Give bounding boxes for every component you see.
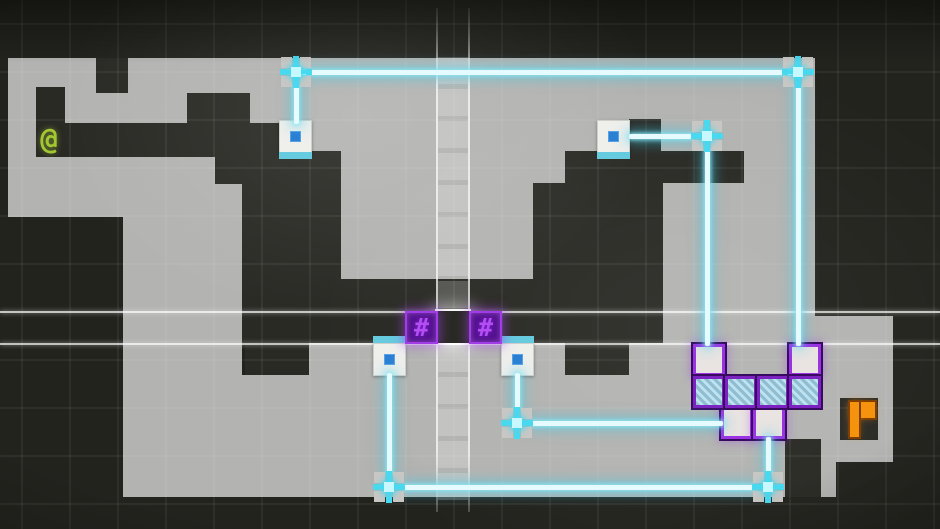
node-corner [711, 140, 722, 151]
pit-hole [96, 58, 128, 93]
node-corner [374, 491, 385, 502]
node-core [793, 67, 803, 77]
pit-hole [36, 87, 65, 123]
node-core [702, 131, 712, 141]
light-beam [705, 148, 710, 346]
socket-indicator [384, 354, 395, 365]
pit-hole [533, 183, 663, 343]
beam-node[interactable] [374, 472, 404, 502]
crystal-tile[interactable] [789, 344, 821, 376]
node-corner [521, 427, 532, 438]
node-tip [795, 56, 801, 62]
beam-node[interactable] [753, 472, 783, 502]
socket-strip [373, 336, 406, 343]
pit-hole [187, 93, 250, 157]
node-corner [300, 76, 311, 87]
platform-slab [8, 183, 123, 217]
node-core [763, 482, 773, 492]
socket-indicator [290, 131, 301, 142]
node-tip [306, 69, 312, 75]
node-core [291, 67, 301, 77]
node-corner [772, 491, 783, 502]
hatch-tile[interactable] [693, 376, 725, 408]
node-core [512, 418, 522, 428]
pit-hole [565, 343, 629, 375]
node-tip [527, 420, 533, 426]
hatch-tile[interactable] [725, 376, 757, 408]
node-tip [293, 56, 299, 62]
node-tip [293, 82, 299, 88]
beam-node[interactable] [783, 57, 813, 87]
node-tip [782, 69, 788, 75]
node-core [384, 482, 394, 492]
socket-strip [597, 152, 630, 159]
selected-cell[interactable] [437, 311, 469, 343]
socket-tile[interactable] [597, 120, 630, 153]
node-tip [808, 69, 814, 75]
node-corner [802, 76, 813, 87]
node-tip [704, 146, 710, 152]
light-beam [294, 84, 299, 124]
node-corner [772, 472, 783, 483]
platform-slab [242, 375, 309, 497]
socket-strip [501, 336, 534, 343]
node-tip [765, 497, 771, 503]
beam-node[interactable] [281, 57, 311, 87]
socket-tile[interactable] [279, 120, 312, 153]
node-corner [393, 472, 404, 483]
socket-indicator [512, 354, 523, 365]
socket-strip [279, 152, 312, 159]
node-tip [752, 484, 758, 490]
hatch-tile[interactable] [789, 376, 821, 408]
node-tip [399, 484, 405, 490]
node-tip [704, 120, 710, 126]
node-tip [386, 471, 392, 477]
pit-hole [245, 343, 309, 375]
light-beam [766, 437, 771, 475]
node-tip [514, 407, 520, 413]
hash-box[interactable]: # [405, 311, 438, 344]
node-corner [753, 491, 764, 502]
pit-hole [215, 151, 341, 184]
socket-indicator [608, 131, 619, 142]
pit-hole [242, 183, 341, 343]
platform-slab [123, 183, 242, 497]
crystal-tile[interactable] [753, 407, 785, 439]
light-beam [296, 70, 798, 75]
crystal-tile[interactable] [693, 344, 725, 376]
socket-tile[interactable] [373, 343, 406, 376]
node-corner [711, 121, 722, 132]
node-tip [717, 133, 723, 139]
exit-marker[interactable] [840, 398, 878, 440]
hatch-tile[interactable] [757, 376, 789, 408]
game-screen[interactable]: ##@ [0, 0, 940, 529]
node-corner [521, 408, 532, 419]
platform-slab [815, 316, 893, 462]
hash-box[interactable]: # [469, 311, 502, 344]
node-tip [765, 471, 771, 477]
node-tip [795, 82, 801, 88]
socket-tile[interactable] [501, 343, 534, 376]
exit-stem [850, 402, 859, 437]
node-corner [502, 427, 513, 438]
pit-hole [785, 439, 821, 497]
light-beam [387, 373, 392, 475]
light-beam [796, 84, 801, 346]
node-corner [692, 140, 703, 151]
column-highlight-line [468, 8, 470, 512]
node-tip [691, 133, 697, 139]
node-tip [386, 497, 392, 503]
node-corner [281, 76, 292, 87]
node-tip [501, 420, 507, 426]
column-highlight-cells [438, 55, 468, 503]
node-tip [280, 69, 286, 75]
node-corner [393, 491, 404, 502]
beam-node[interactable] [502, 408, 532, 438]
node-corner [802, 57, 813, 68]
node-corner [300, 57, 311, 68]
light-beam [529, 421, 723, 426]
crystal-tile[interactable] [721, 407, 753, 439]
light-beam [515, 373, 520, 411]
node-tip [514, 433, 520, 439]
platform-slab [8, 58, 815, 123]
pit-hole [565, 151, 744, 183]
beam-node[interactable] [692, 121, 722, 151]
player-at[interactable]: @ [33, 122, 65, 156]
node-tip [373, 484, 379, 490]
node-tip [778, 484, 784, 490]
light-beam [401, 485, 756, 490]
node-corner [783, 76, 794, 87]
light-beam [629, 134, 695, 139]
